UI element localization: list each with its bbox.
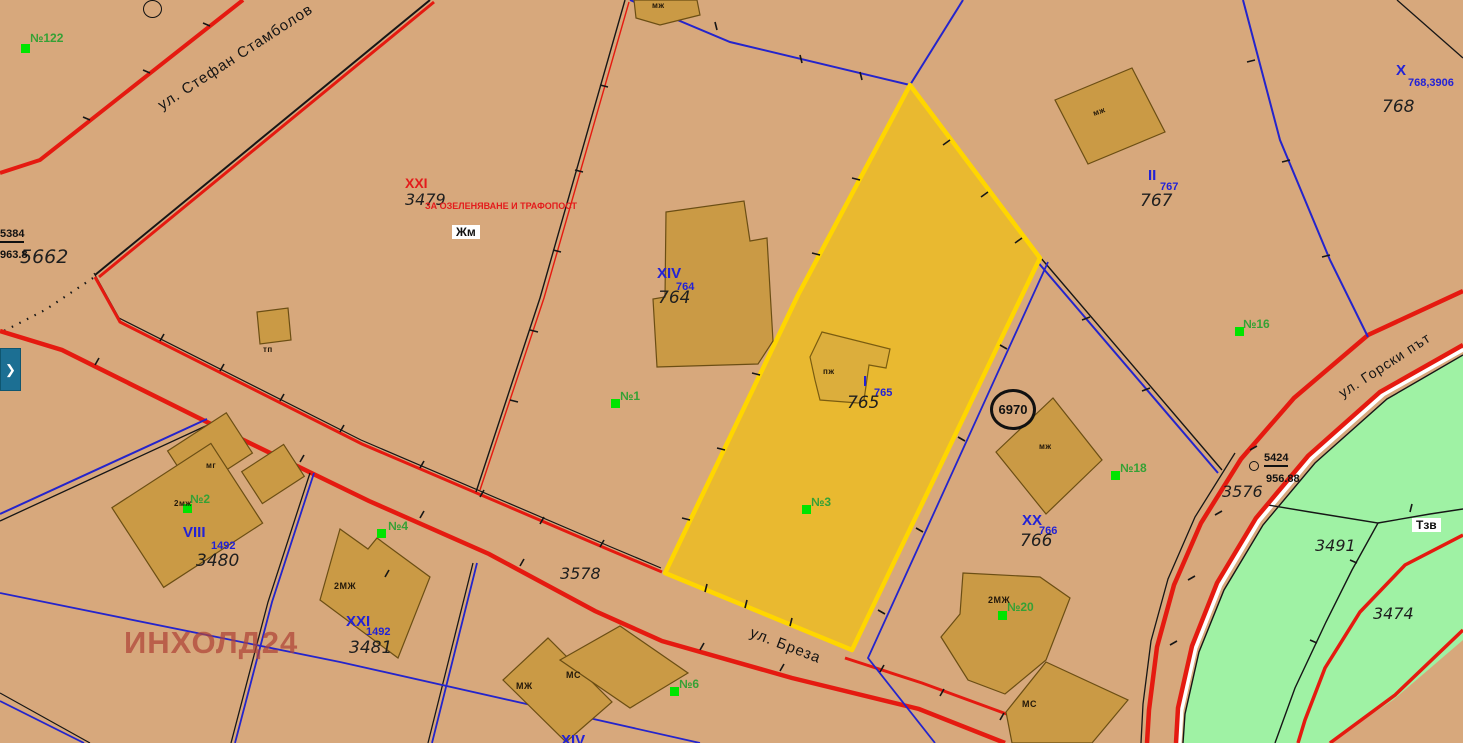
upi-label-767: II xyxy=(1148,168,1156,183)
plan-number-768: 768,3906 xyxy=(1408,78,1454,89)
building-tp xyxy=(257,308,291,344)
cadastral-766: 766 xyxy=(1020,533,1052,550)
address-2: №2 xyxy=(190,493,210,505)
upi-label-764: XIV xyxy=(657,266,681,281)
building-label-mg: мг xyxy=(206,462,216,470)
upi-label-765: I xyxy=(863,374,867,389)
upi-label-3480: VIII xyxy=(183,525,206,540)
marker-square-18 xyxy=(1111,471,1120,480)
building-label-2mj-3481: 2МЖ xyxy=(334,582,356,591)
survey-circle-topleft xyxy=(143,0,162,18)
cadastral-3474: 3474 xyxy=(1373,606,1414,622)
point-circle-6970: 6970 xyxy=(990,389,1036,430)
address-1: №1 xyxy=(620,390,640,402)
cadastral-3491: 3491 xyxy=(1315,538,1356,554)
chevron-right-icon: ❯ xyxy=(5,362,16,378)
marker-square-4 xyxy=(377,529,386,538)
address-6: №6 xyxy=(679,678,699,690)
cadastral-3576: 3576 xyxy=(1222,484,1263,500)
building-label-mj-diamond: мж xyxy=(1039,443,1052,451)
building-label-mj-top: мж xyxy=(652,2,665,10)
building-label-pj: пж xyxy=(823,368,835,376)
zone-note-3479: ЗА ОЗЕЛЕНЯВАНЕ И ТРАФОПОСТ xyxy=(425,202,577,211)
zone-box-tzv: Тзв xyxy=(1412,518,1441,532)
address-20: №20 xyxy=(1007,601,1034,613)
building-label-ms-bottom: МС xyxy=(566,671,581,680)
survey-point-5384-id: 5384 xyxy=(0,229,24,243)
address-4: №4 xyxy=(388,520,408,532)
cadastral-map-canvas[interactable]: ул. Стефан Стамболов ул. Бреза ул. Горск… xyxy=(0,0,1463,743)
plan-number-3481: 1492 xyxy=(366,627,390,638)
building-label-2mj-20: 2МЖ xyxy=(988,596,1010,605)
zone-box-jm: Жм xyxy=(452,225,480,239)
survey-point-5424-id: 5424 xyxy=(1264,453,1288,467)
watermark: ИНХОЛД24 xyxy=(124,625,298,661)
address-122: №122 xyxy=(30,32,63,44)
survey-point-5384-elev: 963.8 xyxy=(0,250,28,261)
cadastral-3480: 3480 xyxy=(196,553,239,570)
cadastral-768: 768 xyxy=(1382,99,1414,116)
upi-label-3479: XXI xyxy=(405,176,428,190)
building-label-mj-bottom: МЖ xyxy=(516,682,533,691)
cadastral-764: 764 xyxy=(658,290,690,307)
marker-square-6 xyxy=(670,687,679,696)
marker-square-3 xyxy=(802,505,811,514)
survey-point-5424-elev: 956.88 xyxy=(1266,474,1300,485)
address-3: №3 xyxy=(811,496,831,508)
upi-label-cut-bottom: XIV xyxy=(561,733,585,743)
cadastral-765: 765 xyxy=(847,395,879,412)
marker-square-122 xyxy=(21,44,30,53)
cadastral-767: 767 xyxy=(1140,193,1172,210)
marker-square-1 xyxy=(611,399,620,408)
building-label-tp: тп xyxy=(263,346,273,354)
marker-square-20 xyxy=(998,611,1007,620)
panel-expand-button[interactable]: ❯ xyxy=(0,348,21,391)
upi-label-768: X xyxy=(1396,63,1406,78)
address-16: №16 xyxy=(1243,318,1270,330)
address-18: №18 xyxy=(1120,462,1147,474)
cadastral-3578: 3578 xyxy=(560,566,601,582)
building-label-ms-right: МС xyxy=(1022,700,1037,709)
survey-point-5424-circle xyxy=(1249,461,1259,471)
cadastral-3481: 3481 xyxy=(349,640,392,657)
building-label-2mj-small: 2мж xyxy=(174,500,192,508)
